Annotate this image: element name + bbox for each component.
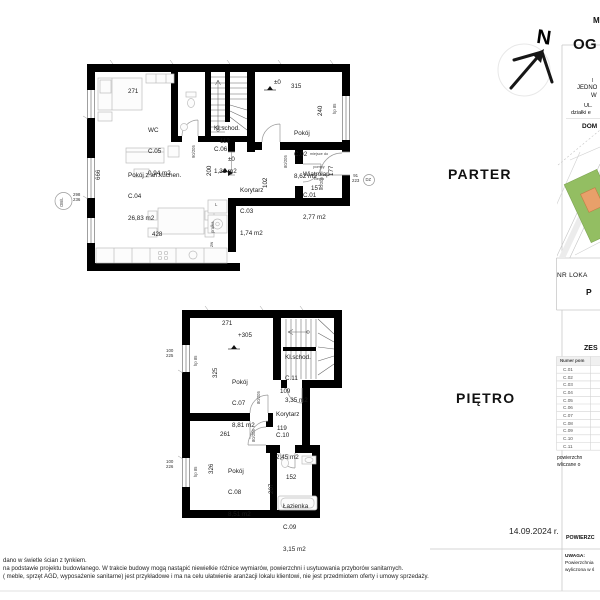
dim-240: 240 <box>318 106 325 116</box>
room-id: C.05 <box>148 148 171 155</box>
room-area: 3,15 m2 <box>283 546 308 553</box>
dim-666: 666 <box>96 170 103 180</box>
subtitle-fragment-3: W <box>591 93 597 100</box>
room-name: Pokój <box>232 379 255 386</box>
dim-102: 102 <box>263 178 270 188</box>
disclaimer-line-2: na podstawie projektu budowlanego. W tra… <box>3 566 403 573</box>
dim-hp85-a: hp 85 <box>194 356 199 366</box>
dim-hp85-parter: hp 85 <box>333 104 338 114</box>
uwaga-line-2: wyliczona w ś <box>565 568 594 573</box>
room-label-c07: Pokój C.07 8,81 m2 <box>232 364 255 437</box>
uwaga-line-1: Powierzchnia <box>565 561 594 566</box>
dim-271-pietro: 271 <box>222 321 232 328</box>
table-footnote-1: powierzchn <box>557 456 582 462</box>
site-map <box>556 130 600 266</box>
note-line: miejsce do <box>300 152 338 156</box>
table-row: C.06 <box>563 405 573 410</box>
room-label-c03: Korytarz C.03 1,74 m2 <box>240 172 263 245</box>
window-size-a: 100 225 <box>166 349 173 359</box>
washer-label: pralka <box>211 222 216 233</box>
dim-152: 152 <box>286 475 296 482</box>
room-name: WC <box>148 127 171 134</box>
address-fragment-1: UL. <box>584 103 593 109</box>
brand-fragment: M <box>593 17 600 26</box>
room-area: 2,77 m2 <box>303 214 330 221</box>
room-name: Kl.schod. <box>214 125 240 132</box>
disclaimer-line-1: dano w świetle ścian z tynkiem. <box>3 558 87 565</box>
table-row: C.09 <box>563 428 573 433</box>
table-row: C.08 <box>563 421 573 426</box>
table-row: C.05 <box>563 398 573 403</box>
dim-428: 428 <box>152 232 162 239</box>
dim-261: 261 <box>220 432 230 439</box>
dim-200: 200 <box>207 166 214 176</box>
dim-109: 109 <box>280 389 290 396</box>
dim-326: 326 <box>209 464 216 474</box>
parter-title: PARTER <box>448 167 512 183</box>
room-area: 1,31 m2 <box>214 168 240 175</box>
room-name: Pokój <box>294 130 317 137</box>
room-label-c09: Łazienka C.09 3,15 m2 <box>283 488 308 561</box>
subtitle-fragment-1: I <box>592 79 593 85</box>
dim-315: 315 <box>291 84 301 91</box>
door-size-c02: 80/205 <box>284 155 289 168</box>
dim-177: 177 <box>329 166 336 176</box>
room-id: C.04 <box>128 193 181 200</box>
window-code-label: OB/L <box>60 197 65 207</box>
date-label: 14.09.2024 r. <box>509 527 559 537</box>
room-area: 8,51 m2 <box>228 511 251 518</box>
powierzchnia-header: POWIERZC <box>566 536 595 542</box>
level-0-top: ±0 <box>274 80 281 87</box>
dom-fragment: DOM <box>582 123 597 130</box>
dim-hp85-b: hp 85 <box>194 467 199 477</box>
dim-119: 119 <box>277 426 287 433</box>
room-name: Kl.schod. <box>285 354 311 361</box>
room-id: C.11 <box>285 375 311 382</box>
dim-112: 112 <box>220 139 230 146</box>
table-header: Numer pom <box>560 359 584 364</box>
room-id: C.10 <box>276 432 299 439</box>
room-id: C.07 <box>232 400 255 407</box>
room-area: 26,83 m2 <box>128 215 181 222</box>
dim-325: 325 <box>213 368 220 378</box>
entry-door-code: DZ <box>366 178 372 183</box>
room-id: C.06 <box>214 146 240 153</box>
door-size-stairs: 90/205 <box>192 145 197 158</box>
room-name: Korytarz <box>276 411 299 418</box>
table-row: C.11 <box>563 444 573 449</box>
room-id: C.09 <box>283 524 308 531</box>
pietro-level-marker <box>228 345 240 349</box>
room-label-c08: Pokój C.08 8,51 m2 <box>228 453 251 526</box>
uwaga-title: UWAGA: <box>565 554 585 559</box>
window-size-label: 298 236 <box>73 193 80 203</box>
table-row: C.02 <box>563 375 573 380</box>
room-id: C.01 <box>303 192 330 199</box>
door-size-c08: 80/205 <box>252 429 257 442</box>
room-name: Korytarz <box>240 187 263 194</box>
north-letter: N <box>535 26 552 50</box>
table-footnote-2: wliczane o <box>557 463 580 469</box>
pietro-title: PIĘTRO <box>456 391 515 407</box>
room-id: C.08 <box>228 489 251 496</box>
entry-door-size: 91 223 <box>352 174 359 184</box>
level-305: +305 <box>238 333 252 340</box>
room-area: 2,45 m2 <box>276 454 299 461</box>
address-fragment-2: działki e <box>571 110 591 116</box>
table-row: C.07 <box>563 413 573 418</box>
l-mark: L <box>215 203 217 208</box>
door-size-c07: 80/205 <box>257 391 262 404</box>
dim-271-parter: 271 <box>128 89 138 96</box>
window-size-b: 100 226 <box>166 460 173 470</box>
room-label-c06: Kl.schod. C.06 1,31 m2 <box>214 110 240 183</box>
table-title: ZES <box>584 345 598 353</box>
nr-lokalu-label: NR LOKA <box>557 272 588 279</box>
room-label-c04: Pokój z an.kuchen. C.04 26,83 m2 <box>128 157 181 230</box>
table-row: C.04 <box>563 390 573 395</box>
level-0-mid: ±0 <box>228 157 235 164</box>
door-size-wiatrolap: 80/205 <box>320 177 325 190</box>
room-name: Łazienka <box>283 503 308 510</box>
room-area: 1,74 m2 <box>240 230 263 237</box>
pietro-walls <box>182 310 342 518</box>
dim-207: 207 <box>269 484 276 494</box>
zw-label: zw <box>210 242 215 247</box>
room-name: Pokój <box>228 468 251 475</box>
room-id: C.03 <box>240 208 263 215</box>
table-row: C.03 <box>563 382 573 387</box>
north-arrow-icon: N <box>498 26 553 96</box>
room-name: Pokój z an.kuchen. <box>128 172 181 179</box>
subtitle-fragment-2: JEDNO <box>577 85 597 92</box>
nr-lokalu-value: P <box>586 288 592 298</box>
table-row: C.01 <box>563 367 573 372</box>
logo-fragment: OG <box>573 37 597 54</box>
disclaimer-line-3: ( meble, sprzęt AGD, wyposażenie sanitar… <box>3 574 429 581</box>
floor-plan-sheet: N PARTER PIĘTRO WC C.05 0,94 m2 Kl.schod… <box>0 0 600 600</box>
table-row: C.10 <box>563 436 573 441</box>
